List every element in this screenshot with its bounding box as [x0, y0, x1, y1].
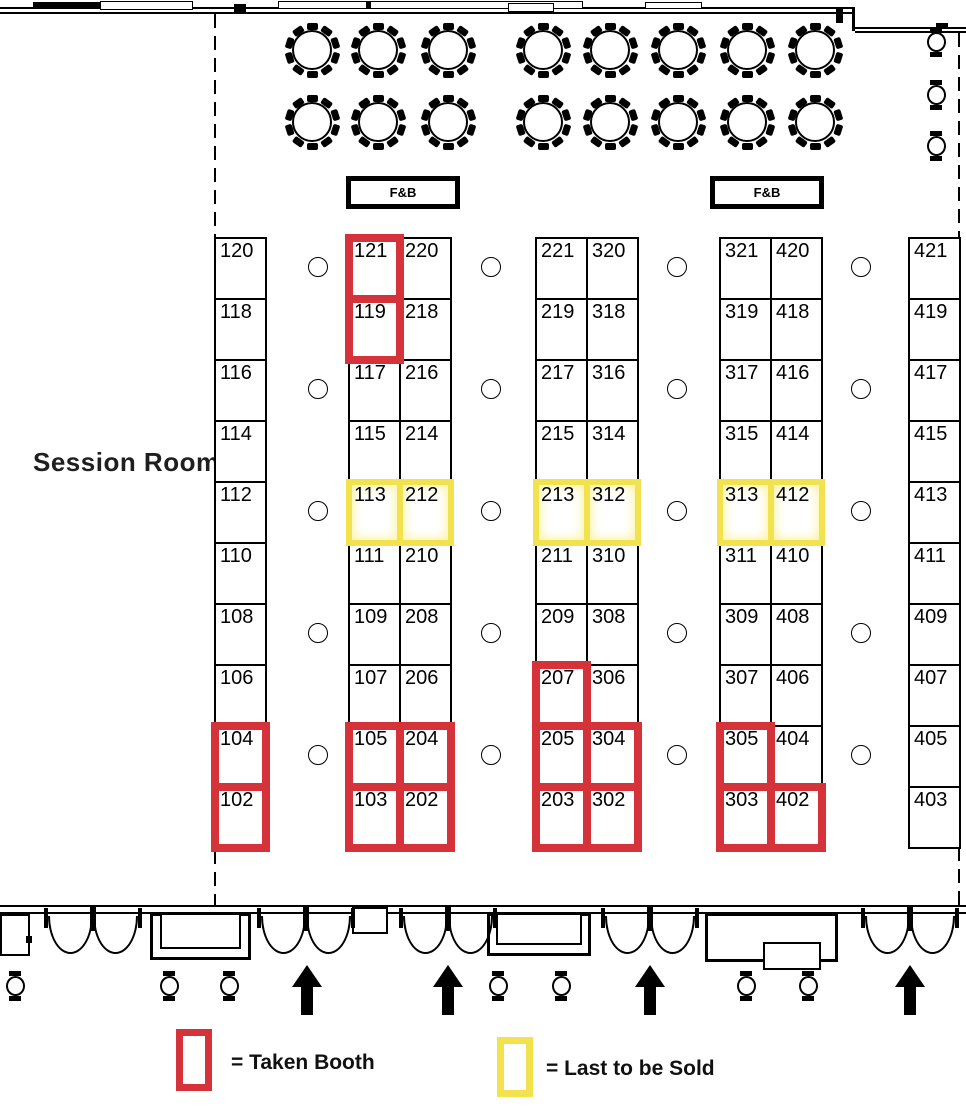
booth-number: 316: [592, 362, 625, 384]
booth-number: 215: [541, 423, 574, 445]
booth-number: 418: [776, 301, 809, 323]
door-arc: [93, 916, 138, 954]
booth-number: 419: [914, 301, 947, 323]
booth-403[interactable]: 403: [908, 786, 961, 849]
chair-icon: [927, 27, 945, 57]
pillar-column: [851, 501, 871, 521]
chair-icon: [160, 971, 178, 1001]
legend-last-label: = Last to be Sold: [546, 1057, 715, 1081]
booth-number: 302: [592, 789, 625, 811]
booth-321[interactable]: 321: [719, 237, 772, 300]
round-table: [514, 93, 572, 151]
booth-304[interactable]: 304: [586, 725, 639, 788]
booth-313[interactable]: 313: [719, 481, 772, 544]
door-jamb: [861, 908, 865, 928]
door-arc: [650, 916, 695, 954]
booth-number: 121: [354, 240, 387, 262]
pillar-column: [851, 623, 871, 643]
top-wall-mark: [508, 3, 554, 12]
pillar-column: [308, 745, 328, 765]
booth-206[interactable]: 206: [399, 664, 452, 727]
round-table: [283, 21, 341, 79]
booth-318[interactable]: 318: [586, 298, 639, 361]
booth-114[interactable]: 114: [214, 420, 267, 483]
booth-number: 108: [220, 606, 253, 628]
round-table: [349, 93, 407, 151]
booth-320[interactable]: 320: [586, 237, 639, 300]
pillar-column: [308, 257, 328, 277]
booth-number: 303: [725, 789, 758, 811]
booth-109[interactable]: 109: [348, 603, 401, 666]
booth-207[interactable]: 207: [535, 664, 588, 727]
booth-number: 409: [914, 606, 947, 628]
booth-number: 405: [914, 728, 947, 750]
booth-number: 203: [541, 789, 574, 811]
booth-416[interactable]: 416: [770, 359, 823, 422]
booth-210[interactable]: 210: [399, 542, 452, 605]
top-wall-post: [234, 4, 246, 13]
booth-108[interactable]: 108: [214, 603, 267, 666]
booth-number: 415: [914, 423, 947, 445]
door-jamb: [351, 908, 355, 928]
booth-112[interactable]: 112: [214, 481, 267, 544]
booth-402[interactable]: 402: [770, 786, 823, 849]
booth-number: 102: [220, 789, 253, 811]
fnb-station-right: F&B: [710, 176, 824, 209]
booth-number: 403: [914, 789, 947, 811]
round-table: [786, 93, 844, 151]
booth-205[interactable]: 205: [535, 725, 588, 788]
booth-number: 414: [776, 423, 809, 445]
chair-icon: [927, 131, 945, 161]
booth-number: 421: [914, 240, 947, 262]
booth-number: 112: [220, 484, 252, 506]
bottom-left-structure: [0, 914, 30, 956]
door-post: [647, 907, 653, 931]
booth-306[interactable]: 306: [586, 664, 639, 727]
round-table: [419, 93, 477, 151]
booth-number: 308: [592, 606, 625, 628]
booth-116[interactable]: 116: [214, 359, 267, 422]
booth-number: 311: [725, 545, 757, 567]
door-arc: [306, 916, 351, 954]
booth-number: 407: [914, 667, 947, 689]
booth-number: 119: [354, 301, 386, 323]
booth-number: 412: [776, 484, 809, 506]
door-jamb: [955, 908, 959, 928]
booth-number: 212: [405, 484, 438, 506]
booth-214[interactable]: 214: [399, 420, 452, 483]
booth-number: 110: [220, 545, 252, 567]
round-table: [581, 21, 639, 79]
chair-icon: [220, 971, 238, 1001]
booth-number: 105: [354, 728, 387, 750]
door-arc: [403, 916, 448, 954]
booth-number: 218: [405, 301, 438, 323]
booth-number: 118: [220, 301, 252, 323]
round-table: [718, 93, 776, 151]
legend-taken-label: = Taken Booth: [231, 1051, 375, 1075]
booth-number: 402: [776, 789, 809, 811]
booth-309[interactable]: 309: [719, 603, 772, 666]
booth-407[interactable]: 407: [908, 664, 961, 727]
round-table: [786, 21, 844, 79]
booth-number: 111: [354, 545, 384, 567]
booth-number: 207: [541, 667, 574, 689]
booth-420[interactable]: 420: [770, 237, 823, 300]
booth-119[interactable]: 119: [348, 298, 401, 361]
booth-number: 213: [541, 484, 574, 506]
pillar-column: [667, 501, 687, 521]
booth-218[interactable]: 218: [399, 298, 452, 361]
booth-314[interactable]: 314: [586, 420, 639, 483]
door-arc: [48, 916, 93, 954]
booth-number: 103: [354, 789, 387, 811]
booth-number: 417: [914, 362, 947, 384]
round-table: [283, 93, 341, 151]
booth-number: 109: [354, 606, 387, 628]
booth-number: 306: [592, 667, 625, 689]
booth-number: 312: [592, 484, 625, 506]
booth-number: 404: [776, 728, 809, 750]
door-jamb: [44, 908, 48, 928]
booth-number: 309: [725, 606, 758, 628]
chair-icon: [552, 971, 570, 1001]
booth-212[interactable]: 212: [399, 481, 452, 544]
booth-number: 320: [592, 240, 625, 262]
chair-icon: [737, 971, 755, 1001]
pillar-column: [481, 623, 501, 643]
booth-408[interactable]: 408: [770, 603, 823, 666]
booth-417[interactable]: 417: [908, 359, 961, 422]
pillar-column: [481, 745, 501, 765]
pillar-column: [308, 501, 328, 521]
booth-410[interactable]: 410: [770, 542, 823, 605]
top-wall-recess-2: [645, 2, 702, 9]
pillar-column: [851, 257, 871, 277]
pillar-column: [308, 379, 328, 399]
booth-419[interactable]: 419: [908, 298, 961, 361]
pillar-column: [308, 623, 328, 643]
booth-414[interactable]: 414: [770, 420, 823, 483]
booth-102[interactable]: 102: [214, 786, 267, 849]
door-post: [90, 907, 96, 931]
pillar-column: [481, 379, 501, 399]
round-table: [349, 21, 407, 79]
booth-118[interactable]: 118: [214, 298, 267, 361]
booth-303[interactable]: 303: [719, 786, 772, 849]
booth-number: 305: [725, 728, 758, 750]
booth-number: 208: [405, 606, 438, 628]
booth-number: 220: [405, 240, 438, 262]
booth-317[interactable]: 317: [719, 359, 772, 422]
booth-216[interactable]: 216: [399, 359, 452, 422]
booth-104[interactable]: 104: [214, 725, 267, 788]
booth-305[interactable]: 305: [719, 725, 772, 788]
booth-number: 210: [405, 545, 438, 567]
door-post: [303, 907, 309, 931]
booth-number: 317: [725, 362, 758, 384]
booth-217[interactable]: 217: [535, 359, 588, 422]
door-jamb: [257, 908, 261, 928]
legend-taken-swatch: [176, 1029, 212, 1091]
booth-number: 413: [914, 484, 947, 506]
round-table: [514, 21, 572, 79]
booth-319[interactable]: 319: [719, 298, 772, 361]
booth-number: 214: [405, 423, 438, 445]
entrance-arrow-icon: [292, 965, 322, 1015]
booth-number: 202: [405, 789, 438, 811]
booth-421[interactable]: 421: [908, 237, 961, 300]
booth-405[interactable]: 405: [908, 725, 961, 788]
door-post: [445, 907, 451, 931]
booth-213[interactable]: 213: [535, 481, 588, 544]
booth-106[interactable]: 106: [214, 664, 267, 727]
vestibule-2-inner: [496, 913, 582, 945]
round-table: [649, 21, 707, 79]
booth-number: 216: [405, 362, 438, 384]
entrance-arrow-icon: [433, 965, 463, 1015]
door-post: [907, 907, 913, 931]
booth-number: 318: [592, 301, 625, 323]
top-wall-tick: [366, 1, 371, 9]
pillar-column: [667, 745, 687, 765]
booth-409[interactable]: 409: [908, 603, 961, 666]
booth-number: 120: [220, 240, 253, 262]
fnb-label: F&B: [754, 185, 781, 200]
booth-211[interactable]: 211: [535, 542, 588, 605]
chair-icon: [6, 971, 24, 1001]
booth-219[interactable]: 219: [535, 298, 588, 361]
bottom-left-structure-tick: [26, 936, 32, 943]
door-jamb: [695, 908, 699, 928]
door-jamb: [493, 908, 497, 928]
vestibule-3-notch: [763, 942, 821, 970]
booth-111[interactable]: 111: [348, 542, 401, 605]
booth-number: 315: [725, 423, 758, 445]
round-table: [419, 21, 477, 79]
booth-number: 205: [541, 728, 574, 750]
booth-209[interactable]: 209: [535, 603, 588, 666]
wall-box: [352, 907, 388, 934]
booth-406[interactable]: 406: [770, 664, 823, 727]
booth-103[interactable]: 103: [348, 786, 401, 849]
booth-415[interactable]: 415: [908, 420, 961, 483]
booth-203[interactable]: 203: [535, 786, 588, 849]
booth-number: 211: [541, 545, 573, 567]
pillar-column: [851, 745, 871, 765]
booth-202[interactable]: 202: [399, 786, 452, 849]
booth-302[interactable]: 302: [586, 786, 639, 849]
booth-number: 313: [725, 484, 758, 506]
booth-310[interactable]: 310: [586, 542, 639, 605]
vestibule-1-inner: [160, 913, 241, 949]
booth-105[interactable]: 105: [348, 725, 401, 788]
booth-208[interactable]: 208: [399, 603, 452, 666]
booth-404[interactable]: 404: [770, 725, 823, 788]
booth-number: 113: [354, 484, 386, 506]
booth-number: 219: [541, 301, 574, 323]
top-wall-door-mark: [33, 2, 100, 8]
booth-110[interactable]: 110: [214, 542, 267, 605]
booth-412[interactable]: 412: [770, 481, 823, 544]
booth-215[interactable]: 215: [535, 420, 588, 483]
pillar-column: [667, 623, 687, 643]
booth-315[interactable]: 315: [719, 420, 772, 483]
door-jamb: [399, 908, 403, 928]
booth-number: 116: [220, 362, 252, 384]
door-arc: [261, 916, 306, 954]
pillar-column: [481, 257, 501, 277]
door-jamb: [601, 908, 605, 928]
booth-number: 411: [914, 545, 946, 567]
booth-107[interactable]: 107: [348, 664, 401, 727]
booth-221[interactable]: 221: [535, 237, 588, 300]
door-arc: [605, 916, 650, 954]
booth-number: 204: [405, 728, 438, 750]
booth-number: 107: [354, 667, 387, 689]
round-table: [581, 93, 639, 151]
entrance-arrow-icon: [635, 965, 665, 1015]
booth-117[interactable]: 117: [348, 359, 401, 422]
top-wall-right: [855, 27, 966, 33]
pillar-column: [667, 257, 687, 277]
booth-number: 221: [541, 240, 574, 262]
top-wall-window-mark: [100, 1, 193, 10]
booth-number: 115: [354, 423, 386, 445]
pillar-column: [667, 379, 687, 399]
booth-number: 206: [405, 667, 438, 689]
booth-number: 314: [592, 423, 625, 445]
booth-411[interactable]: 411: [908, 542, 961, 605]
booth-number: 106: [220, 667, 253, 689]
booth-number: 104: [220, 728, 253, 750]
booth-316[interactable]: 316: [586, 359, 639, 422]
chair-icon: [799, 971, 817, 1001]
exhibit-hall-floor-plan: Session Room F&B F&B = Taken Booth = Las…: [0, 0, 966, 1113]
booth-number: 310: [592, 545, 625, 567]
booth-311[interactable]: 311: [719, 542, 772, 605]
booth-number: 114: [220, 423, 252, 445]
chair-icon: [489, 971, 507, 1001]
legend-last-swatch: [497, 1037, 533, 1097]
door-arc: [865, 916, 910, 954]
booth-220[interactable]: 220: [399, 237, 452, 300]
booth-113[interactable]: 113: [348, 481, 401, 544]
booth-413[interactable]: 413: [908, 481, 961, 544]
booth-number: 416: [776, 362, 809, 384]
chair-icon: [927, 80, 945, 110]
booth-115[interactable]: 115: [348, 420, 401, 483]
door-jamb: [138, 908, 142, 928]
booth-number: 307: [725, 667, 758, 689]
booth-number: 217: [541, 362, 574, 384]
entrance-arrow-icon: [895, 965, 925, 1015]
booth-number: 321: [725, 240, 758, 262]
booth-120[interactable]: 120: [214, 237, 267, 300]
booth-number: 209: [541, 606, 574, 628]
door-arc: [910, 916, 955, 954]
round-table: [718, 21, 776, 79]
booth-number: 304: [592, 728, 625, 750]
fnb-label: F&B: [390, 185, 417, 200]
booth-number: 420: [776, 240, 809, 262]
booth-312[interactable]: 312: [586, 481, 639, 544]
booth-number: 319: [725, 301, 758, 323]
booth-number: 406: [776, 667, 809, 689]
booth-204[interactable]: 204: [399, 725, 452, 788]
booth-121[interactable]: 121: [348, 237, 401, 300]
booth-418[interactable]: 418: [770, 298, 823, 361]
booth-307[interactable]: 307: [719, 664, 772, 727]
pillar-column: [851, 379, 871, 399]
pillar-column: [481, 501, 501, 521]
fnb-station-left: F&B: [346, 176, 460, 209]
booth-number: 410: [776, 545, 809, 567]
booth-number: 408: [776, 606, 809, 628]
round-table: [649, 93, 707, 151]
session-room-label: Session Room: [33, 447, 220, 478]
booth-308[interactable]: 308: [586, 603, 639, 666]
booth-number: 117: [354, 362, 386, 384]
